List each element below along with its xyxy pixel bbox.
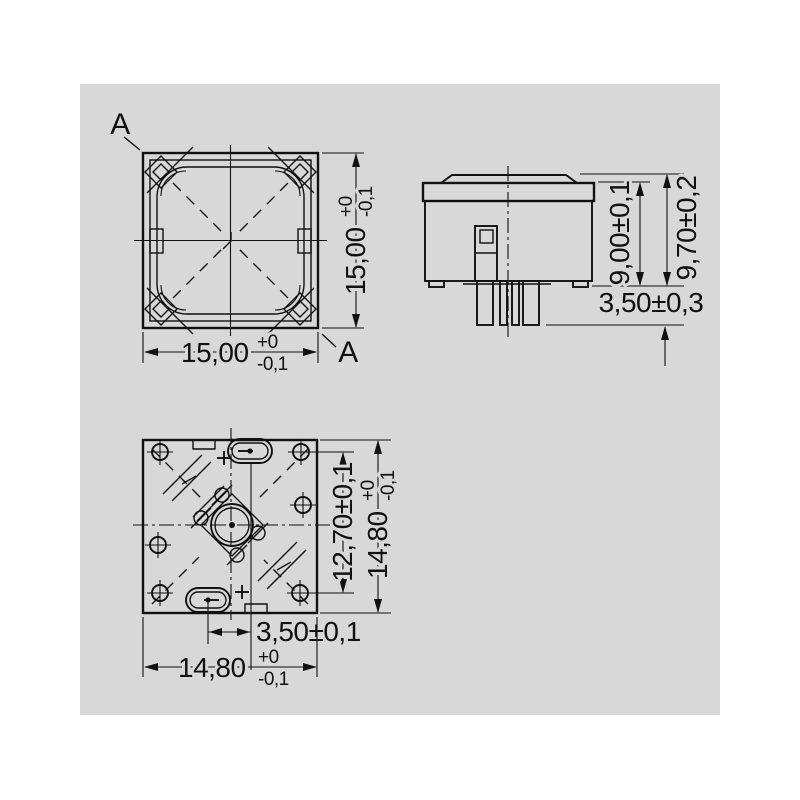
technical-drawing: A A 15,00 +0 -0,1 15,00 +0 -0,1 bbox=[0, 0, 800, 800]
bottom-height-value: 14,80 bbox=[362, 511, 393, 579]
bottom-width-tol-minus: -0,1 bbox=[258, 669, 289, 690]
section-label-top: A bbox=[110, 108, 130, 141]
front-width-value: 15,00 bbox=[181, 337, 249, 368]
side-body-height-value: 9,00±0,1 bbox=[604, 181, 635, 286]
front-height-value: 15,00 bbox=[340, 227, 371, 295]
section-label-bottom: A bbox=[338, 336, 358, 369]
bottom-hole-span-value: 12,70±0,1 bbox=[327, 462, 358, 582]
front-height-tol-plus: +0 bbox=[336, 196, 357, 217]
bottom-slot-offset-value: 3,50±0,1 bbox=[256, 616, 361, 647]
drawing-panel bbox=[80, 84, 720, 715]
front-height-tol-minus: -0,1 bbox=[356, 186, 377, 217]
side-overall-height-value: 9,70±0,2 bbox=[671, 176, 702, 281]
bottom-height-tol-plus: +0 bbox=[358, 480, 379, 501]
bottom-height-tol-minus: -0,1 bbox=[378, 470, 399, 501]
bottom-width-tol-plus: +0 bbox=[258, 647, 279, 668]
side-pin-length-value: 3,50±0,3 bbox=[599, 287, 704, 318]
front-width-tol-minus: -0,1 bbox=[257, 354, 288, 375]
drawing-page: A A 15,00 +0 -0,1 15,00 +0 -0,1 bbox=[0, 0, 800, 800]
front-width-tol-plus: +0 bbox=[257, 332, 278, 353]
bottom-width-value: 14,80 bbox=[178, 652, 246, 683]
